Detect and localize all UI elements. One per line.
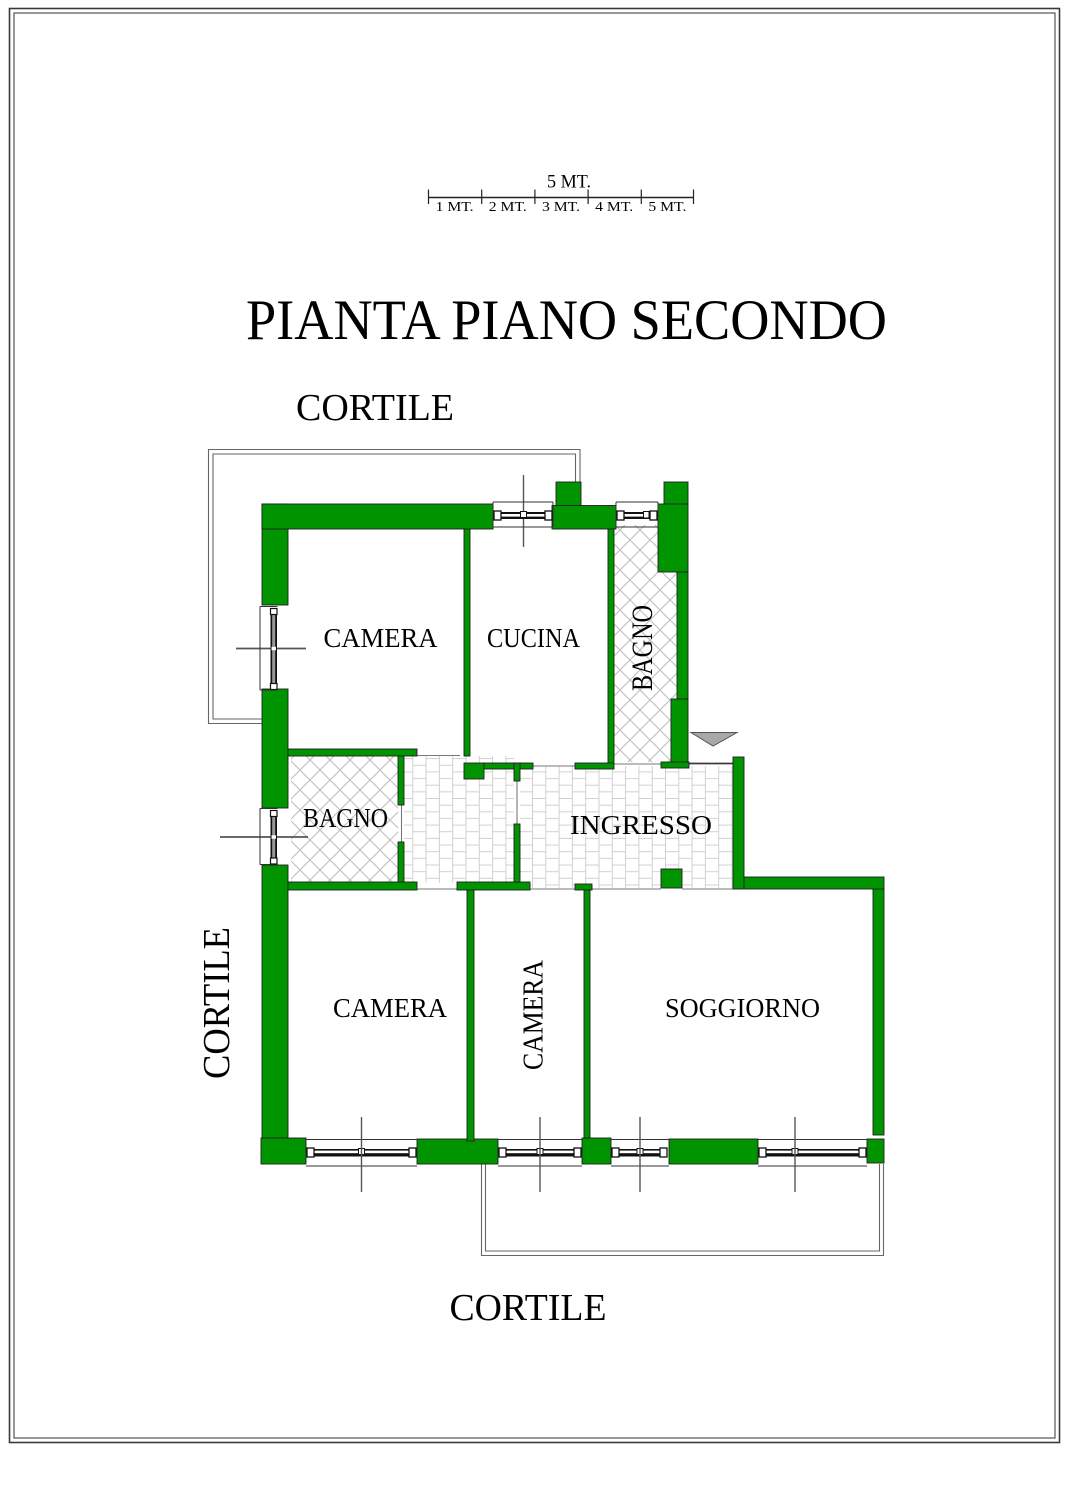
svg-text:CORTILE: CORTILE [196,927,238,1079]
svg-text:CORTILE: CORTILE [296,387,454,429]
svg-text:2 MT.: 2 MT. [489,200,527,215]
svg-text:CAMERA: CAMERA [333,993,447,1023]
svg-text:PIANTA PIANO SECONDO: PIANTA PIANO SECONDO [246,289,887,352]
svg-text:BAGNO: BAGNO [303,803,388,833]
svg-text:5 MT.: 5 MT. [648,200,686,215]
svg-text:CUCINA: CUCINA [487,623,580,653]
svg-text:CAMERA: CAMERA [518,960,550,1070]
svg-text:1 MT.: 1 MT. [436,200,474,215]
svg-text:4 MT.: 4 MT. [595,200,633,215]
svg-text:INGRESSO: INGRESSO [570,810,712,840]
svg-text:CORTILE: CORTILE [450,1287,607,1329]
svg-text:BAGNO: BAGNO [626,605,659,691]
svg-text:CAMERA: CAMERA [324,623,438,653]
svg-text:SOGGIORNO: SOGGIORNO [665,993,820,1023]
svg-text:3 MT.: 3 MT. [542,200,580,215]
svg-text:5 MT.: 5 MT. [547,172,591,193]
